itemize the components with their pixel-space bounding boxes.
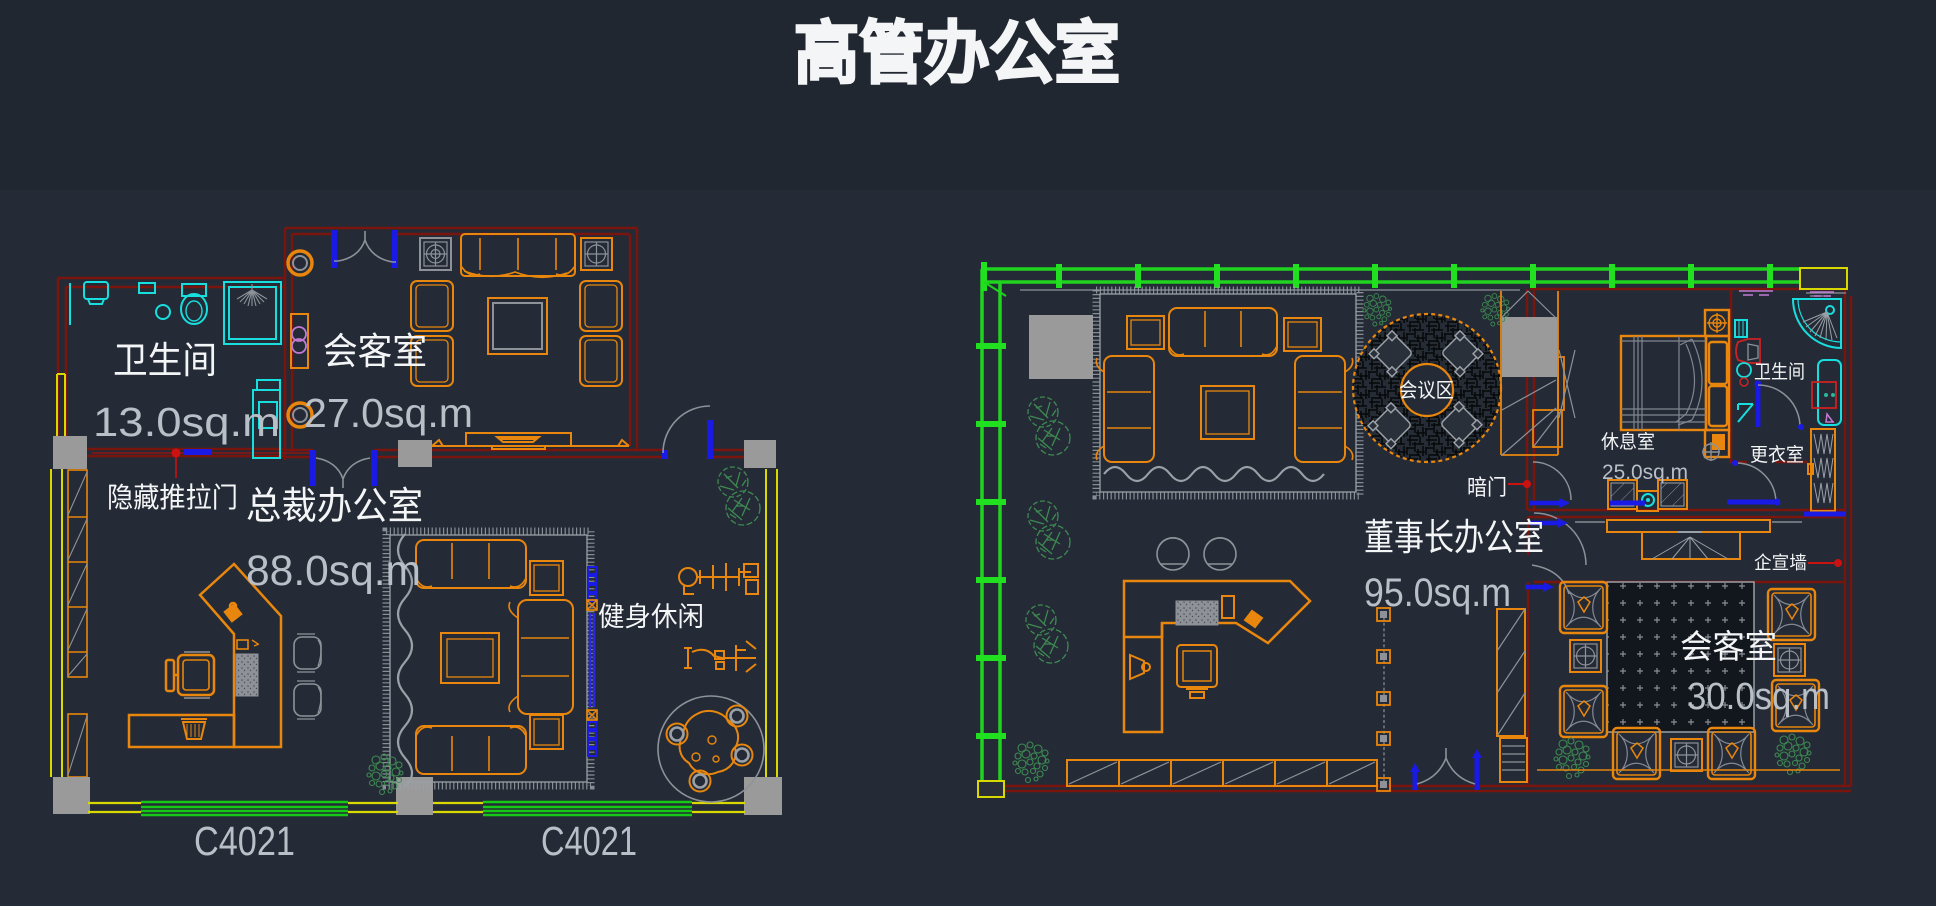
svg-text:健身休闲: 健身休闲 — [598, 602, 704, 632]
svg-text:C4021: C4021 — [194, 818, 295, 864]
svg-text:董事长办公室: 董事长办公室 — [1364, 517, 1544, 558]
svg-text:25.0sq.m: 25.0sq.m — [1602, 461, 1688, 484]
svg-text:隐藏推拉门: 隐藏推拉门 — [107, 482, 238, 513]
svg-text:13.0sq.m: 13.0sq.m — [93, 399, 280, 445]
svg-text:卫生间: 卫生间 — [113, 340, 217, 381]
svg-text:95.0sq.m: 95.0sq.m — [1364, 571, 1511, 615]
svg-text:总裁办公室: 总裁办公室 — [246, 486, 423, 528]
svg-text:会客室: 会客室 — [1680, 628, 1777, 665]
svg-text:休息室: 休息室 — [1601, 431, 1655, 453]
svg-text:30.0sq.m: 30.0sq.m — [1687, 676, 1830, 718]
svg-text:更衣室: 更衣室 — [1750, 444, 1804, 466]
svg-text:88.0sq.m: 88.0sq.m — [246, 547, 421, 595]
svg-text:会客室: 会客室 — [323, 331, 427, 372]
svg-text:高管办公室: 高管办公室 — [794, 16, 1120, 92]
svg-text:暗门: 暗门 — [1467, 475, 1507, 500]
svg-text:会议区: 会议区 — [1399, 379, 1454, 402]
svg-text:卫生间: 卫生间 — [1754, 361, 1805, 383]
svg-text:C4021: C4021 — [541, 818, 637, 864]
svg-text:27.0sq.m: 27.0sq.m — [304, 390, 473, 436]
svg-text:企宣墙: 企宣墙 — [1754, 553, 1807, 573]
